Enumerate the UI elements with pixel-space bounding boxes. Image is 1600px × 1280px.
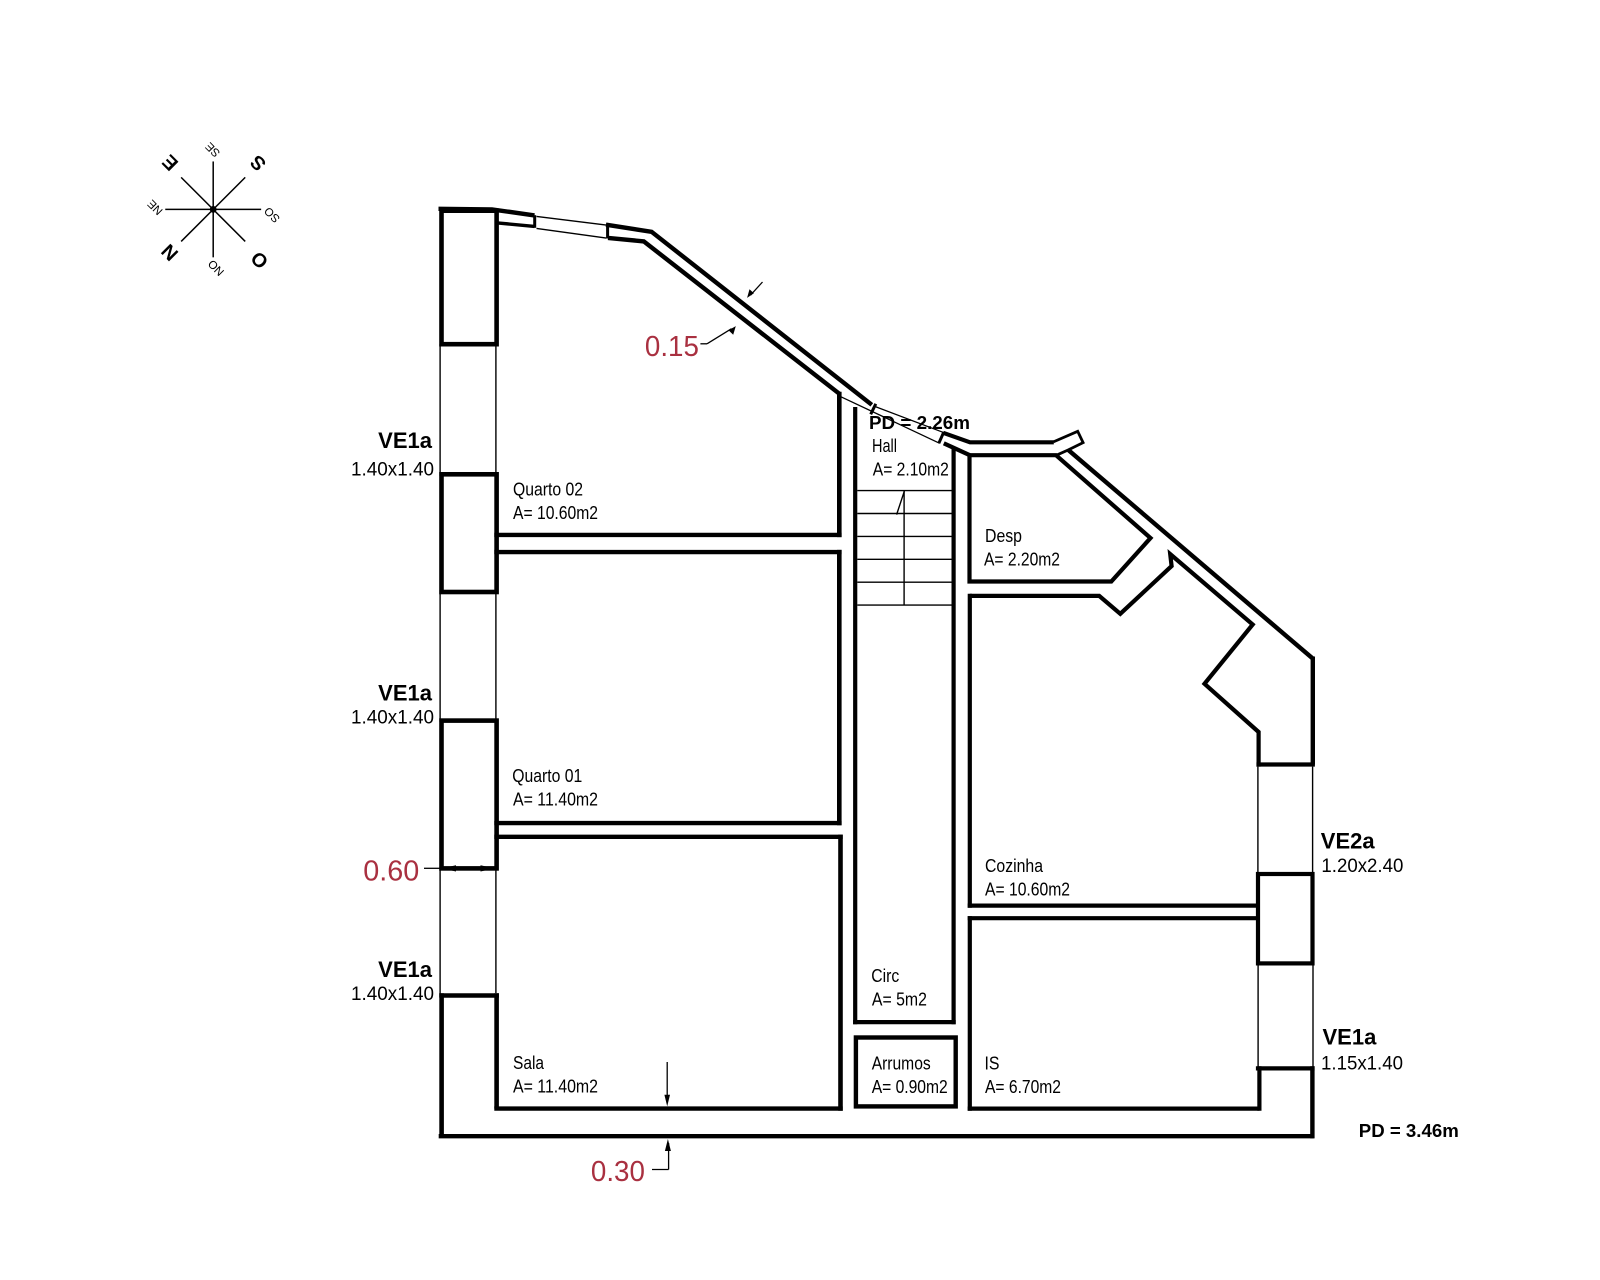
svg-text:A= 0.90m2: A= 0.90m2 bbox=[872, 1077, 948, 1097]
svg-text:VE1a: VE1a bbox=[1323, 1025, 1378, 1050]
svg-text:0.15: 0.15 bbox=[645, 331, 699, 363]
svg-text:Quarto 02: Quarto 02 bbox=[513, 479, 583, 499]
svg-text:VE1a: VE1a bbox=[378, 957, 433, 982]
svg-text:VE1a: VE1a bbox=[378, 681, 433, 706]
svg-text:IS: IS bbox=[985, 1054, 1000, 1074]
svg-text:1.40x1.40: 1.40x1.40 bbox=[351, 984, 434, 1005]
svg-text:A= 10.60m2: A= 10.60m2 bbox=[513, 503, 598, 523]
svg-text:Hall: Hall bbox=[872, 436, 897, 456]
svg-text:Circ: Circ bbox=[871, 966, 899, 986]
svg-text:0.60: 0.60 bbox=[363, 856, 419, 888]
svg-text:A= 2.20m2: A= 2.20m2 bbox=[984, 550, 1060, 570]
svg-text:A= 10.60m2: A= 10.60m2 bbox=[985, 880, 1070, 900]
svg-text:VE2a: VE2a bbox=[1321, 829, 1376, 854]
svg-text:A= 2.10m2: A= 2.10m2 bbox=[873, 459, 949, 479]
svg-text:A= 6.70m2: A= 6.70m2 bbox=[985, 1077, 1061, 1097]
svg-text:PD = 3.46m: PD = 3.46m bbox=[1359, 1121, 1459, 1141]
svg-text:1.20x2.40: 1.20x2.40 bbox=[1321, 856, 1403, 877]
svg-text:A= 11.40m2: A= 11.40m2 bbox=[513, 790, 598, 810]
svg-text:A= 11.40m2: A= 11.40m2 bbox=[513, 1077, 598, 1097]
svg-text:0.30: 0.30 bbox=[591, 1156, 645, 1188]
svg-text:Desp: Desp bbox=[985, 526, 1022, 546]
svg-text:Arrumos: Arrumos bbox=[872, 1054, 931, 1074]
svg-text:1.15x1.40: 1.15x1.40 bbox=[1321, 1053, 1403, 1074]
svg-text:VE1a: VE1a bbox=[378, 428, 433, 453]
svg-text:A= 5m2: A= 5m2 bbox=[872, 990, 927, 1010]
svg-text:PD = 2.26m: PD = 2.26m bbox=[869, 413, 970, 433]
svg-text:Quarto 01: Quarto 01 bbox=[512, 766, 582, 786]
svg-text:Cozinha: Cozinha bbox=[985, 856, 1044, 876]
svg-text:1.40x1.40: 1.40x1.40 bbox=[351, 459, 434, 480]
svg-text:Sala: Sala bbox=[513, 1053, 545, 1073]
svg-text:1.40x1.40: 1.40x1.40 bbox=[351, 708, 434, 729]
